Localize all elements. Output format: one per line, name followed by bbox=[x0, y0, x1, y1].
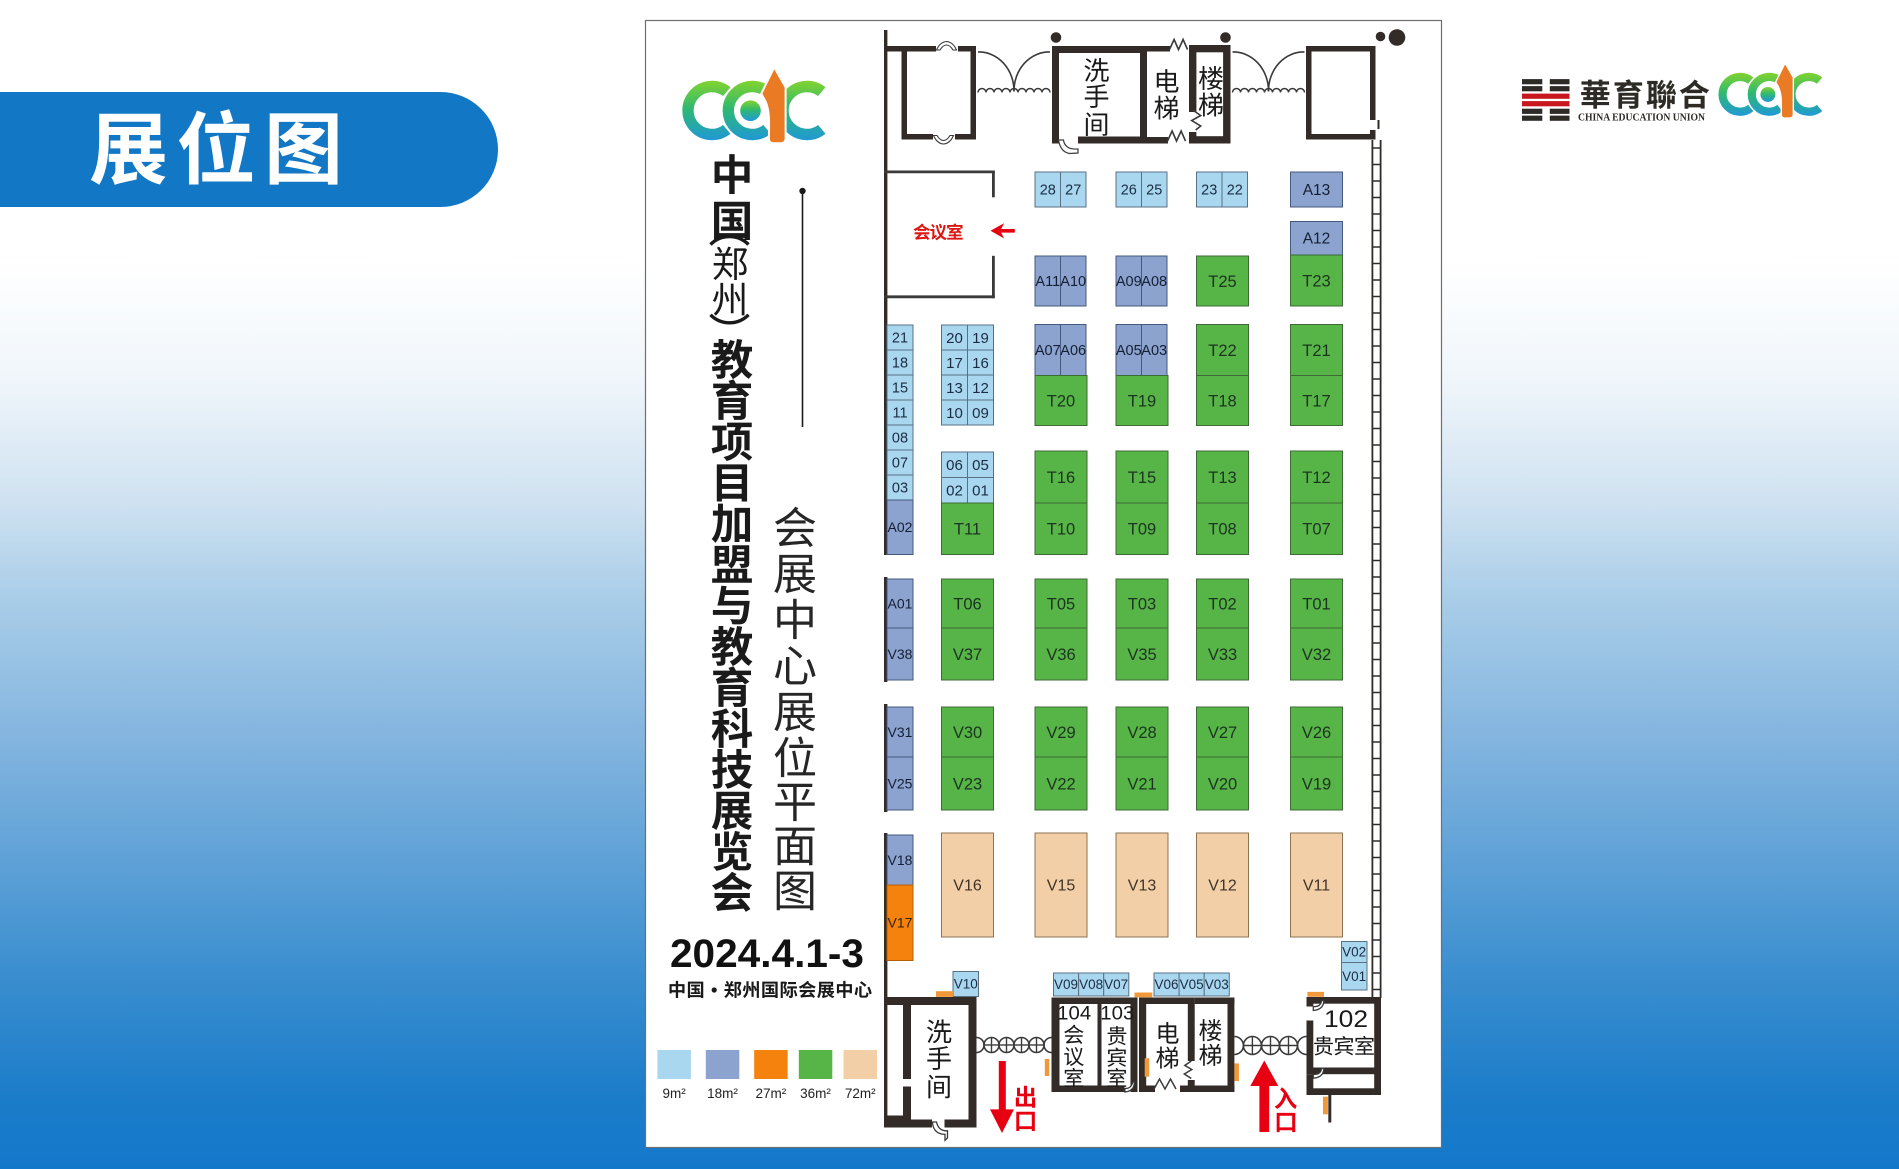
svg-text:13: 13 bbox=[946, 380, 963, 397]
svg-text:27: 27 bbox=[1065, 183, 1081, 199]
svg-text:102: 102 bbox=[1324, 1006, 1368, 1033]
svg-text:V11: V11 bbox=[1303, 878, 1330, 895]
svg-text:V28: V28 bbox=[1127, 724, 1156, 742]
svg-text:V13: V13 bbox=[1128, 878, 1157, 895]
svg-text:V36: V36 bbox=[1046, 646, 1075, 664]
svg-text:T05: T05 bbox=[1047, 595, 1075, 613]
svg-text:103: 103 bbox=[1100, 1002, 1134, 1024]
svg-text:10: 10 bbox=[946, 405, 963, 422]
svg-text:V18: V18 bbox=[888, 852, 913, 868]
svg-text:06: 06 bbox=[946, 457, 963, 474]
svg-text:V21: V21 bbox=[1127, 775, 1156, 793]
svg-text:T22: T22 bbox=[1208, 342, 1236, 360]
svg-text:V17: V17 bbox=[888, 915, 913, 931]
svg-text:V27: V27 bbox=[1208, 724, 1237, 742]
svg-text:V38: V38 bbox=[888, 646, 913, 662]
svg-text:28: 28 bbox=[1040, 183, 1056, 199]
svg-text:T17: T17 bbox=[1302, 392, 1330, 410]
svg-text:A10: A10 bbox=[1060, 274, 1086, 290]
svg-text:104: 104 bbox=[1057, 1002, 1091, 1024]
svg-text:V07: V07 bbox=[1104, 977, 1128, 992]
svg-text:72m²: 72m² bbox=[845, 1086, 876, 1101]
svg-text:2024.4.1-3: 2024.4.1-3 bbox=[670, 932, 864, 976]
svg-text:V31: V31 bbox=[888, 724, 913, 740]
svg-text:T01: T01 bbox=[1302, 595, 1330, 613]
svg-text:09: 09 bbox=[972, 405, 989, 422]
svg-text:A06: A06 bbox=[1060, 343, 1086, 359]
svg-text:V26: V26 bbox=[1302, 724, 1331, 742]
svg-text:T11: T11 bbox=[954, 521, 981, 539]
svg-text:V33: V33 bbox=[1208, 646, 1237, 664]
svg-text:36m²: 36m² bbox=[800, 1086, 831, 1101]
svg-text:19: 19 bbox=[972, 330, 989, 347]
svg-text:V06: V06 bbox=[1154, 977, 1178, 992]
svg-text:A08: A08 bbox=[1141, 274, 1167, 290]
svg-text:T12: T12 bbox=[1302, 469, 1330, 487]
svg-text:27m²: 27m² bbox=[756, 1086, 787, 1101]
svg-text:A03: A03 bbox=[1141, 343, 1167, 359]
svg-text:15: 15 bbox=[892, 381, 908, 397]
svg-text:V16: V16 bbox=[953, 878, 982, 895]
svg-text:18: 18 bbox=[892, 356, 908, 372]
svg-text:23: 23 bbox=[1201, 183, 1217, 199]
svg-text:A09: A09 bbox=[1116, 274, 1142, 290]
svg-text:V30: V30 bbox=[953, 724, 982, 742]
svg-text:T20: T20 bbox=[1047, 392, 1075, 410]
svg-text:07: 07 bbox=[892, 456, 908, 472]
svg-text:T25: T25 bbox=[1208, 273, 1236, 291]
svg-text:T09: T09 bbox=[1128, 521, 1156, 539]
svg-text:11: 11 bbox=[892, 406, 907, 422]
svg-text:A13: A13 bbox=[1303, 182, 1331, 199]
svg-text:A01: A01 bbox=[888, 595, 913, 611]
svg-text:A02: A02 bbox=[888, 519, 913, 535]
svg-text:08: 08 bbox=[892, 431, 908, 447]
svg-text:22: 22 bbox=[1227, 183, 1243, 199]
svg-text:V32: V32 bbox=[1302, 646, 1331, 664]
svg-text:V19: V19 bbox=[1302, 775, 1331, 793]
svg-text:T03: T03 bbox=[1128, 595, 1156, 613]
svg-text:T21: T21 bbox=[1302, 342, 1330, 360]
svg-text:V09: V09 bbox=[1054, 977, 1078, 992]
svg-text:V23: V23 bbox=[953, 775, 982, 793]
svg-text:03: 03 bbox=[892, 481, 908, 497]
svg-text:V35: V35 bbox=[1127, 646, 1156, 664]
svg-text:V37: V37 bbox=[953, 646, 982, 664]
svg-text:V29: V29 bbox=[1046, 724, 1075, 742]
svg-text:T13: T13 bbox=[1208, 469, 1236, 487]
svg-text:25: 25 bbox=[1146, 183, 1162, 199]
svg-text:05: 05 bbox=[972, 457, 989, 474]
svg-text:V02: V02 bbox=[1342, 945, 1366, 960]
svg-text:26: 26 bbox=[1121, 183, 1137, 199]
svg-text:T15: T15 bbox=[1128, 469, 1156, 487]
svg-text:CHINA EDUCATION UNION: CHINA EDUCATION UNION bbox=[1578, 113, 1706, 124]
svg-text:V05: V05 bbox=[1180, 977, 1204, 992]
svg-text:T16: T16 bbox=[1047, 469, 1075, 487]
svg-text:V08: V08 bbox=[1079, 977, 1103, 992]
svg-text:17: 17 bbox=[946, 355, 963, 372]
svg-text:T10: T10 bbox=[1047, 521, 1075, 539]
svg-text:T08: T08 bbox=[1208, 521, 1236, 539]
svg-text:T23: T23 bbox=[1302, 272, 1330, 290]
svg-text:16: 16 bbox=[972, 355, 989, 372]
svg-text:T02: T02 bbox=[1208, 595, 1236, 613]
svg-text:9m²: 9m² bbox=[662, 1086, 686, 1101]
svg-text:20: 20 bbox=[946, 330, 963, 347]
svg-text:T07: T07 bbox=[1302, 521, 1330, 539]
svg-text:V15: V15 bbox=[1047, 878, 1076, 895]
svg-text:V25: V25 bbox=[888, 775, 913, 791]
svg-text:A07: A07 bbox=[1035, 343, 1061, 359]
svg-text:A11: A11 bbox=[1035, 274, 1060, 290]
svg-text:T19: T19 bbox=[1128, 392, 1156, 410]
svg-text:18m²: 18m² bbox=[707, 1086, 738, 1101]
svg-text:V12: V12 bbox=[1208, 878, 1237, 895]
svg-text:21: 21 bbox=[892, 331, 908, 347]
svg-text:V03: V03 bbox=[1205, 977, 1229, 992]
svg-text:V01: V01 bbox=[1342, 969, 1366, 984]
svg-text:A05: A05 bbox=[1116, 343, 1142, 359]
svg-text:01: 01 bbox=[972, 483, 989, 500]
svg-text:V22: V22 bbox=[1046, 775, 1075, 793]
svg-text:A12: A12 bbox=[1303, 231, 1331, 248]
svg-text:12: 12 bbox=[972, 380, 989, 397]
svg-text:V20: V20 bbox=[1208, 775, 1237, 793]
svg-text:T18: T18 bbox=[1208, 392, 1236, 410]
svg-text:02: 02 bbox=[946, 483, 963, 500]
svg-text:T06: T06 bbox=[953, 595, 981, 613]
svg-text:V10: V10 bbox=[954, 977, 978, 992]
